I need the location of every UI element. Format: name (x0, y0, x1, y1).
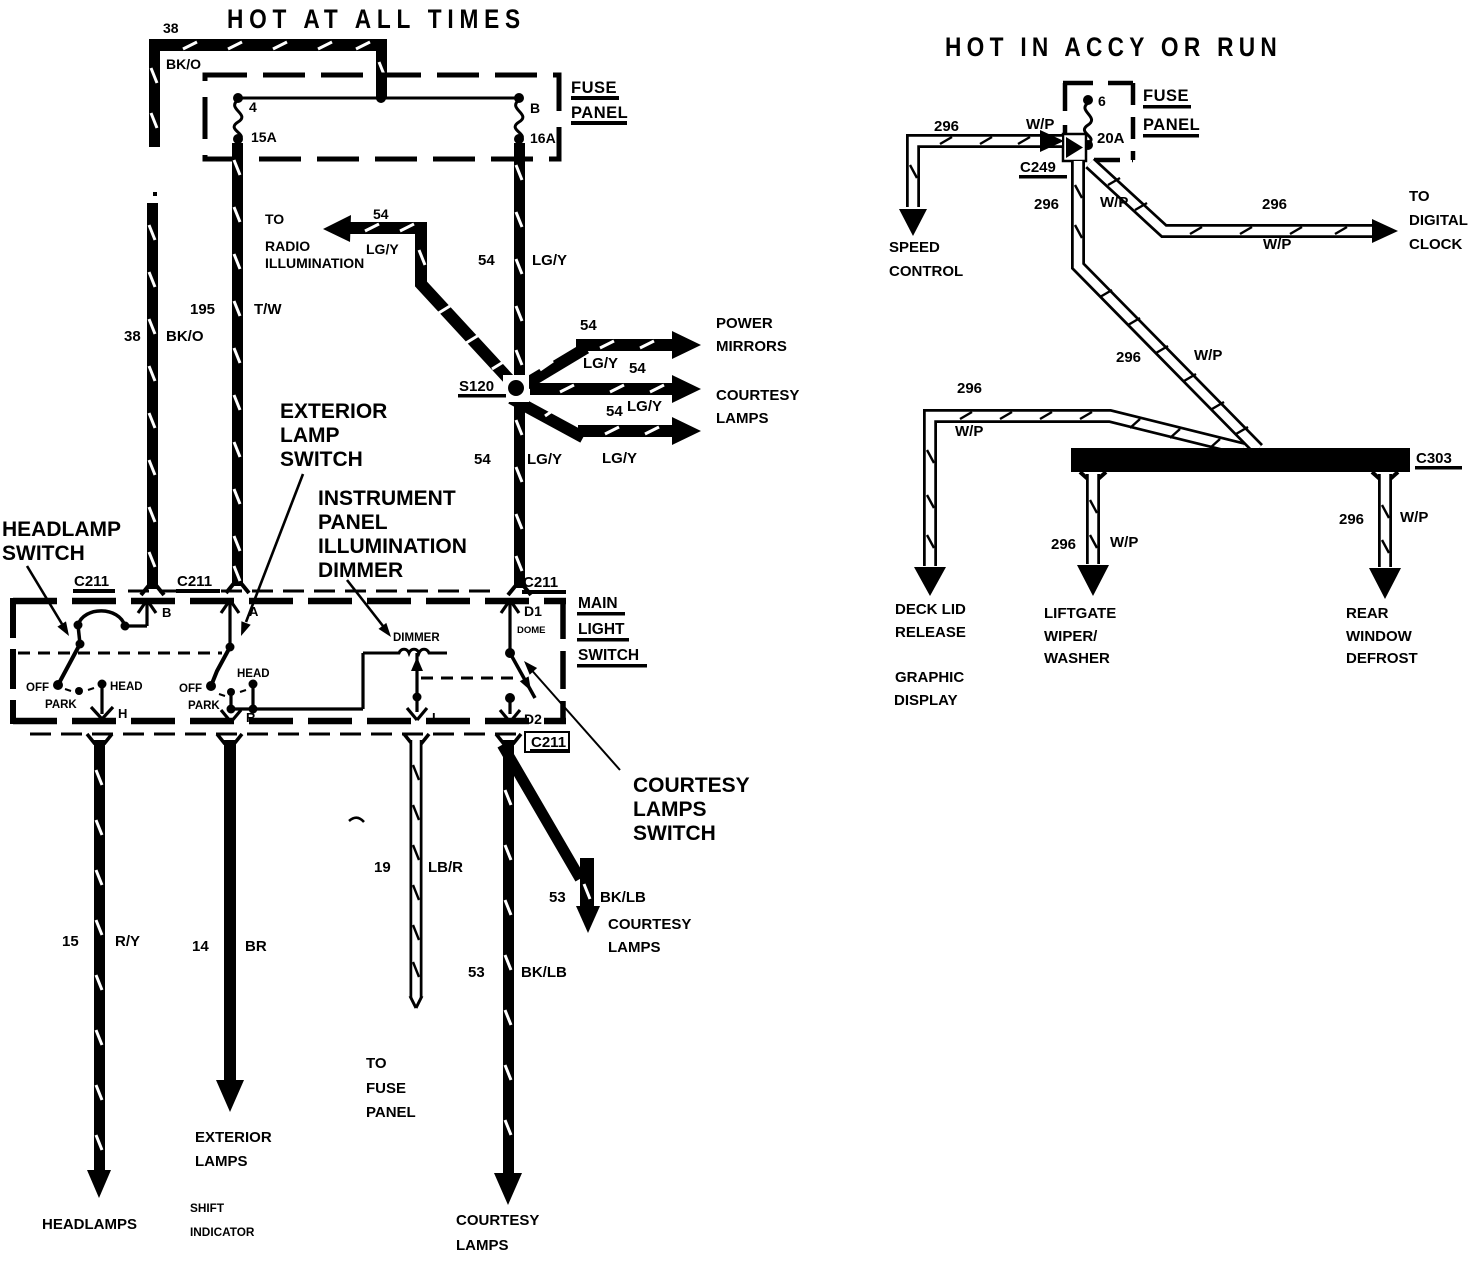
svg-text:DIMMER: DIMMER (318, 559, 403, 582)
svg-text:FUSE: FUSE (1143, 87, 1189, 105)
svg-text:SPEED: SPEED (889, 239, 940, 256)
svg-text:PANEL: PANEL (318, 511, 388, 534)
svg-text:A: A (249, 604, 259, 619)
svg-text:C211: C211 (531, 734, 566, 751)
svg-text:C249: C249 (1020, 159, 1056, 176)
svg-text:DEFROST: DEFROST (1346, 650, 1418, 667)
svg-text:TO: TO (265, 211, 284, 227)
svg-text:WASHER: WASHER (1044, 650, 1110, 667)
svg-text:W/P: W/P (955, 423, 983, 440)
svg-text:REAR: REAR (1346, 605, 1389, 622)
svg-text:R: R (246, 710, 256, 725)
svg-text:COURTESY: COURTESY (456, 1212, 539, 1229)
svg-text:WINDOW: WINDOW (1346, 628, 1413, 645)
svg-text:T/W: T/W (254, 301, 282, 318)
svg-text:19: 19 (374, 859, 391, 876)
svg-text:LAMPS: LAMPS (456, 1237, 509, 1254)
svg-text:DISPLAY: DISPLAY (894, 692, 958, 709)
svg-text:BK/O: BK/O (166, 56, 201, 72)
svg-text:14: 14 (192, 938, 209, 955)
svg-text:PARK: PARK (188, 700, 220, 712)
svg-text:B: B (530, 100, 540, 116)
svg-text:D1: D1 (524, 603, 542, 619)
svg-text:53: 53 (468, 964, 485, 981)
svg-text:COURTESY: COURTESY (716, 387, 799, 404)
svg-text:15: 15 (62, 933, 79, 950)
svg-text:PANEL: PANEL (571, 104, 628, 122)
svg-text:296: 296 (1116, 349, 1141, 366)
svg-text:PANEL: PANEL (366, 1104, 416, 1121)
svg-text:DOME: DOME (517, 625, 546, 636)
svg-text:54: 54 (580, 317, 597, 334)
svg-text:BR: BR (245, 938, 267, 955)
svg-text:FUSE: FUSE (366, 1080, 406, 1097)
svg-text:LG/Y: LG/Y (627, 398, 662, 415)
svg-text:16A: 16A (530, 130, 556, 146)
svg-text:HEADLAMP: HEADLAMP (2, 518, 121, 541)
svg-text:HEADLAMPS: HEADLAMPS (42, 1216, 137, 1233)
svg-text:15A: 15A (251, 129, 277, 145)
svg-text:B: B (162, 605, 171, 620)
svg-text:W/P: W/P (1100, 194, 1128, 211)
svg-text:54: 54 (373, 206, 389, 222)
svg-text:C211: C211 (523, 574, 558, 591)
svg-text:H: H (118, 706, 127, 721)
svg-text:PARK: PARK (45, 699, 77, 711)
svg-text:BK/LB: BK/LB (600, 889, 646, 906)
svg-text:GRAPHIC: GRAPHIC (895, 669, 964, 686)
svg-text:38: 38 (163, 20, 179, 36)
svg-text:LG/Y: LG/Y (602, 450, 637, 467)
svg-text:TO: TO (366, 1055, 387, 1072)
svg-text:SHIFT: SHIFT (190, 1201, 225, 1215)
svg-text:LIGHT: LIGHT (578, 621, 625, 638)
svg-text:4: 4 (249, 99, 257, 115)
svg-text:RADIO: RADIO (265, 238, 310, 254)
svg-text:OFF: OFF (26, 682, 49, 694)
svg-text:LG/Y: LG/Y (527, 451, 562, 468)
svg-text:54: 54 (474, 451, 491, 468)
svg-text:DIMMER: DIMMER (393, 632, 440, 644)
svg-text:R/Y: R/Y (115, 933, 140, 950)
svg-text:ILLUMINATION: ILLUMINATION (318, 535, 467, 558)
svg-text:W/P: W/P (1400, 509, 1428, 526)
svg-text:C303: C303 (1416, 450, 1452, 467)
svg-text:POWER: POWER (716, 315, 773, 332)
svg-text:RELEASE: RELEASE (895, 624, 966, 641)
svg-text:ILLUMINATION: ILLUMINATION (265, 255, 364, 271)
svg-text:W/P: W/P (1026, 116, 1054, 133)
svg-text:MAIN: MAIN (578, 595, 618, 612)
svg-text:BK/O: BK/O (166, 328, 204, 345)
svg-text:LAMPS: LAMPS (716, 410, 769, 427)
svg-text:CLOCK: CLOCK (1409, 236, 1462, 253)
svg-text:SWITCH: SWITCH (2, 542, 85, 565)
svg-text:LAMP: LAMP (280, 424, 340, 447)
svg-text:54: 54 (629, 360, 646, 377)
svg-text:HOT IN ACCY OR RUN: HOT IN ACCY OR RUN (945, 32, 1277, 62)
svg-text:FUSE: FUSE (571, 79, 617, 97)
svg-text:20A: 20A (1097, 130, 1125, 147)
svg-text:COURTESY: COURTESY (633, 774, 750, 797)
svg-text:COURTESY: COURTESY (608, 916, 691, 933)
svg-text:HEAD: HEAD (237, 668, 270, 680)
svg-text:296: 296 (934, 118, 959, 135)
svg-text:W/P: W/P (1263, 236, 1291, 253)
svg-text:S120: S120 (459, 378, 494, 395)
svg-text:D2: D2 (524, 711, 542, 727)
svg-text:W/P: W/P (1110, 534, 1138, 551)
svg-text:WIPER/: WIPER/ (1044, 628, 1098, 645)
svg-text:OFF: OFF (179, 683, 202, 695)
svg-text:EXTERIOR: EXTERIOR (280, 400, 387, 423)
svg-text:LG/Y: LG/Y (366, 241, 399, 257)
svg-text:I: I (432, 710, 436, 725)
svg-text:LAMPS: LAMPS (195, 1153, 248, 1170)
svg-text:EXTERIOR: EXTERIOR (195, 1129, 272, 1146)
svg-text:W/P: W/P (1194, 347, 1222, 364)
svg-text:195: 195 (190, 301, 215, 318)
svg-text:38: 38 (124, 328, 141, 345)
svg-text:BK/LB: BK/LB (521, 964, 567, 981)
svg-text:HEAD: HEAD (110, 681, 143, 693)
svg-text:SWITCH: SWITCH (280, 448, 363, 471)
svg-text:LAMPS: LAMPS (608, 939, 661, 956)
svg-text:6: 6 (1098, 93, 1106, 109)
svg-text:296: 296 (1051, 536, 1076, 553)
svg-text:CONTROL: CONTROL (889, 263, 963, 280)
svg-text:54: 54 (606, 403, 623, 420)
svg-text:DIGITAL: DIGITAL (1409, 212, 1468, 229)
svg-text:296: 296 (957, 380, 982, 397)
svg-text:SWITCH: SWITCH (578, 647, 639, 664)
svg-text:LG/Y: LG/Y (583, 355, 618, 372)
svg-text:MIRRORS: MIRRORS (716, 338, 787, 355)
svg-text:LB/R: LB/R (428, 859, 463, 876)
svg-text:C211: C211 (74, 573, 109, 590)
svg-text:296: 296 (1262, 196, 1287, 213)
svg-text:C211: C211 (177, 573, 212, 590)
svg-text:296: 296 (1034, 196, 1059, 213)
svg-text:DECK LID: DECK LID (895, 601, 966, 618)
svg-text:53: 53 (549, 889, 566, 906)
svg-text:TO: TO (1409, 188, 1430, 205)
svg-text:INDICATOR: INDICATOR (190, 1225, 255, 1239)
svg-text:LIFTGATE: LIFTGATE (1044, 605, 1116, 622)
svg-text:296: 296 (1339, 511, 1364, 528)
svg-text:LAMPS: LAMPS (633, 798, 707, 821)
svg-text:SWITCH: SWITCH (633, 822, 716, 845)
svg-text:LG/Y: LG/Y (532, 252, 567, 269)
svg-text:PANEL: PANEL (1143, 116, 1200, 134)
svg-text:INSTRUMENT: INSTRUMENT (318, 487, 456, 510)
svg-text:54: 54 (478, 252, 495, 269)
